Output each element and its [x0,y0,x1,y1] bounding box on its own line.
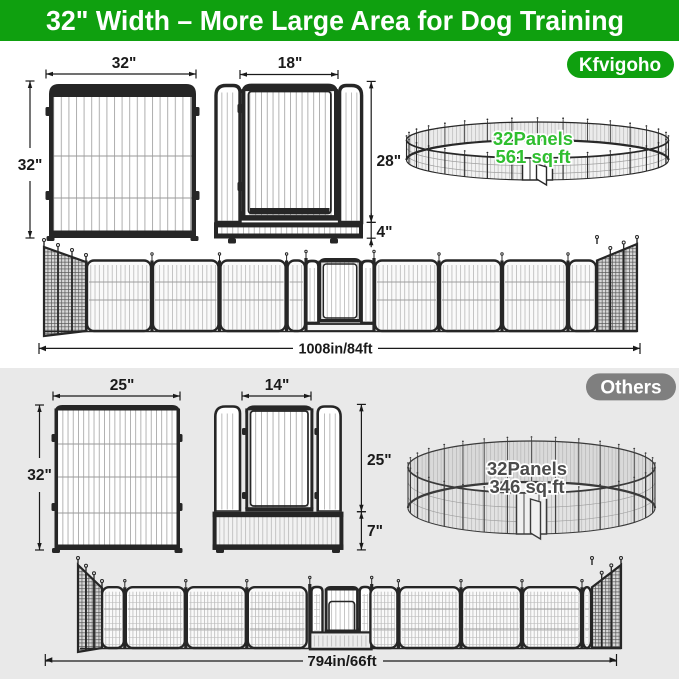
svg-text:32": 32" [112,55,137,72]
svg-text:Others: Others [600,378,661,399]
svg-text:18": 18" [278,55,303,72]
svg-text:4": 4" [377,224,393,241]
svg-text:32": 32" [18,157,43,174]
svg-text:561 sq.ft: 561 sq.ft [495,146,570,167]
svg-text:25": 25" [367,452,392,469]
svg-text:32" Width – More Large Area fo: 32" Width – More Large Area for Dog Trai… [46,5,624,36]
svg-text:794in/66ft: 794in/66ft [307,653,376,670]
svg-text:346 sq.ft: 346 sq.ft [489,476,564,497]
svg-text:Kfvigoho: Kfvigoho [579,55,661,76]
svg-text:28": 28" [377,153,402,170]
svg-text:32": 32" [27,467,52,484]
svg-text:14": 14" [265,377,290,394]
svg-text:25": 25" [110,377,135,394]
svg-text:7": 7" [367,523,383,540]
svg-text:1008in/84ft: 1008in/84ft [299,341,373,358]
